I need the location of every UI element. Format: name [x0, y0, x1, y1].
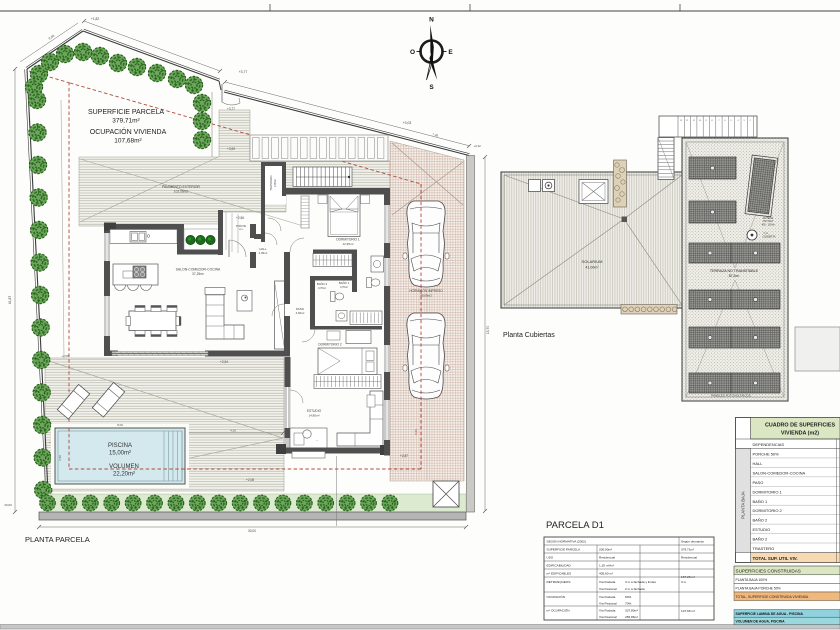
- svg-text:PORCHE 50%: PORCHE 50%: [753, 452, 780, 457]
- svg-text:41,87: 41,87: [8, 296, 12, 305]
- svg-text:ESTUDIO: ESTUDIO: [307, 409, 322, 413]
- svg-text:SUPERFICIE LAMINA DE AGUA - PI: SUPERFICIE LAMINA DE AGUA - PISCINA: [736, 612, 804, 616]
- svg-text:PAVIMENTO EXTERIOR: PAVIMENTO EXTERIOR: [162, 185, 200, 189]
- svg-text:379,71m²: 379,71m²: [112, 118, 140, 125]
- svg-text:O: O: [410, 49, 415, 56]
- svg-text:SUPERFICIE PARCELA: SUPERFICIE PARCELA: [88, 109, 164, 116]
- svg-text:BAÑO 1: BAÑO 1: [753, 499, 768, 504]
- svg-text:2 m a fachada: 2 m a fachada: [625, 587, 645, 591]
- svg-text:2,95m²: 2,95m²: [273, 179, 277, 187]
- svg-text:TOTAL, SUPERFICIE CONSTRUIDA V: TOTAL, SUPERFICIE CONSTRUIDA VIVIENDA: [736, 595, 810, 599]
- svg-text:167,28 m²: 167,28 m²: [681, 575, 695, 579]
- svg-text:PISCINA: PISCINA: [108, 443, 132, 449]
- svg-text:TRASTERO: TRASTERO: [269, 175, 273, 191]
- svg-text:Vía Rodada: Vía Rodada: [599, 580, 616, 584]
- svg-text:SALON-COMEDOR-COCINA: SALON-COMEDOR-COCINA: [753, 470, 806, 475]
- svg-text:7,40: 7,40: [432, 132, 439, 137]
- svg-text:Planta Cubiertas: Planta Cubiertas: [503, 332, 555, 339]
- svg-text:379,71m²: 379,71m²: [681, 547, 694, 551]
- svg-text:2,09m²: 2,09m²: [259, 251, 268, 255]
- svg-text:3 m a fachada y lindes: 3 m a fachada y lindes: [625, 580, 656, 584]
- svg-text:102,06m2: 102,06m2: [174, 190, 188, 194]
- svg-text:VOLUMEN DE AGUA, PISCINA: VOLUMEN DE AGUA, PISCINA: [736, 620, 786, 624]
- svg-text:VIVIENDA (m2): VIVIENDA (m2): [781, 431, 819, 437]
- svg-text:TRASTERO: TRASTERO: [753, 546, 775, 551]
- svg-text:S: S: [429, 84, 434, 91]
- svg-text:±0,00: ±0,00: [4, 503, 12, 507]
- svg-text:DORMITORIO 1: DORMITORIO 1: [336, 238, 360, 242]
- svg-text:1,20 m²/m²: 1,20 m²/m²: [599, 563, 614, 567]
- svg-text:4,69m²: 4,69m²: [296, 311, 305, 315]
- svg-text:SUPERFICIES CONSTRUIDAS: SUPERFICIES CONSTRUIDAS: [736, 569, 801, 574]
- svg-text:+2,87: +2,87: [400, 454, 408, 458]
- svg-text:Vía Peatonal: Vía Peatonal: [599, 601, 617, 605]
- svg-text:70%: 70%: [625, 601, 631, 605]
- svg-text:Vía Peatonal: Vía Peatonal: [599, 615, 617, 619]
- svg-text:CUADRO DE SUPERFICIES: CUADRO DE SUPERFICIES: [765, 423, 835, 429]
- svg-text:15,70: 15,70: [486, 326, 490, 335]
- svg-text:107,68m²: 107,68m²: [114, 138, 142, 145]
- svg-text:OCUPACIÓN: OCUPACIÓN: [547, 594, 566, 599]
- svg-text:C.A.: C.A.: [763, 231, 768, 235]
- svg-text:OCUPACIÓN VIVIENDA: OCUPACIÓN VIVIENDA: [90, 127, 167, 136]
- svg-text:PLANTA BAJA 100%: PLANTA BAJA 100%: [736, 578, 768, 582]
- svg-text:PLANTA BAJA: PLANTA BAJA: [741, 491, 746, 519]
- svg-text:405,60 m²: 405,60 m²: [599, 571, 613, 575]
- svg-text:Según demanda: Según demanda: [681, 539, 704, 543]
- svg-text:PLANTA PARCELA: PLANTA PARCELA: [25, 535, 90, 544]
- svg-text:RETRANQUEOS: RETRANQUEOS: [547, 580, 571, 584]
- svg-text:+3,99: +3,99: [227, 147, 235, 151]
- svg-text:Residencial: Residencial: [599, 555, 615, 559]
- svg-text:87,2m²: 87,2m²: [729, 274, 740, 278]
- svg-text:15,00m²: 15,00m²: [109, 451, 131, 457]
- svg-text:PORCHE: PORCHE: [236, 225, 247, 228]
- svg-text:+3,12: +3,12: [473, 144, 481, 148]
- svg-text:337,80m²: 337,80m²: [625, 609, 638, 613]
- svg-text:HALL: HALL: [753, 461, 764, 466]
- svg-text:DORMITORIO 1: DORMITORIO 1: [753, 489, 783, 494]
- svg-text:SOLARIUM: SOLARIUM: [582, 259, 603, 264]
- svg-text:265,86m²: 265,86m²: [625, 615, 638, 619]
- svg-text:30,00: 30,00: [248, 529, 256, 533]
- svg-text:m² EDIFICABLES: m² EDIFICABLES: [547, 571, 572, 575]
- svg-text:PASO: PASO: [753, 480, 764, 485]
- svg-text:60%: 60%: [625, 595, 631, 599]
- svg-text:107,68 m²: 107,68 m²: [681, 609, 695, 613]
- svg-text:+2,94: +2,94: [220, 360, 228, 364]
- svg-text:41,00m²: 41,00m²: [585, 266, 599, 270]
- svg-text:Vía Rodada: Vía Rodada: [599, 595, 616, 599]
- svg-text:TERRAZA NO TRANSITABLE: TERRAZA NO TRANSITABLE: [710, 269, 759, 273]
- svg-text:Residencial: Residencial: [681, 555, 697, 559]
- svg-text:22,20m²: 22,20m²: [113, 472, 135, 478]
- svg-text:BAÑO 1: BAÑO 1: [339, 280, 350, 285]
- svg-text:3,70m²: 3,70m²: [340, 285, 348, 289]
- svg-text:2,50: 2,50: [58, 455, 62, 461]
- svg-text:+1,82: +1,82: [91, 17, 99, 21]
- svg-text:+3,03: +3,03: [403, 121, 412, 125]
- svg-text:+2,58: +2,58: [61, 354, 69, 358]
- svg-text:m² OCUPACIÓN: m² OCUPACIÓN: [547, 608, 570, 613]
- svg-text:14,80m²: 14,80m²: [308, 414, 319, 418]
- svg-text:9,46: 9,46: [48, 34, 56, 41]
- svg-text:PANELES FOTOVOLTAICOS: PANELES FOTOVOLTAICOS: [711, 394, 750, 398]
- svg-text:3 m: 3 m: [681, 580, 687, 584]
- svg-text:37,25m²: 37,25m²: [192, 272, 204, 276]
- svg-text:SALON-COMEDOR-COCINA: SALON-COMEDOR-COCINA: [176, 268, 221, 272]
- svg-text:N: N: [429, 17, 434, 24]
- svg-text:+2,08: +2,08: [246, 478, 254, 482]
- svg-text:DORMITORIO 2: DORMITORIO 2: [753, 508, 783, 513]
- svg-text:EDIFICABILIDAD: EDIFICABILIDAD: [547, 563, 572, 567]
- svg-text:12,95m²: 12,95m²: [342, 242, 353, 246]
- svg-text:E: E: [448, 49, 453, 56]
- svg-text:48,09m2: 48,09m2: [420, 294, 432, 298]
- svg-text:TOTAL SUP. UTIL VIV.: TOTAL SUP. UTIL VIV.: [753, 556, 798, 561]
- svg-text:SUPERFICIE PARCELA: SUPERFICIE PARCELA: [547, 547, 582, 551]
- svg-text:8,00: 8,00: [414, 429, 418, 435]
- svg-text:ESTUDIO: ESTUDIO: [753, 527, 771, 532]
- svg-text:40E - 150Hz: 40E - 150Hz: [761, 223, 775, 226]
- svg-text:PLANTA BAJA PORCHE 50%: PLANTA BAJA PORCHE 50%: [736, 587, 781, 591]
- svg-text:SEGÚN NORMATIVA (2002): SEGÚN NORMATIVA (2002): [547, 539, 586, 543]
- svg-text:8,00: 8,00: [117, 423, 123, 427]
- svg-text:+2,56: +2,56: [236, 216, 244, 220]
- svg-text:HORMIGÓN IMPRESO: HORMIGÓN IMPRESO: [409, 288, 443, 293]
- svg-text:DORMITORIO 2: DORMITORIO 2: [318, 343, 342, 347]
- svg-text:+3,77: +3,77: [227, 107, 235, 111]
- svg-text:200,00m²: 200,00m²: [599, 547, 612, 551]
- svg-text:BAÑO 2: BAÑO 2: [753, 518, 768, 523]
- svg-text:PARCELA D1: PARCELA D1: [546, 520, 604, 531]
- svg-text:4,36: 4,36: [230, 429, 236, 433]
- svg-text:BAÑO 2: BAÑO 2: [753, 537, 768, 542]
- svg-text:DEPENDENCIAS: DEPENDENCIAS: [753, 442, 785, 447]
- svg-text:+3,77: +3,77: [239, 70, 248, 74]
- svg-text:3,70m²: 3,70m²: [318, 286, 326, 290]
- svg-text:Vía Peatonal: Vía Peatonal: [599, 587, 617, 591]
- svg-text:Vía Rodada: Vía Rodada: [599, 609, 616, 613]
- svg-text:50%: 50%: [239, 229, 243, 231]
- svg-text:↔: ↔: [316, 438, 319, 442]
- svg-text:CUBIERTA: CUBIERTA: [763, 234, 776, 238]
- svg-text:USO: USO: [547, 555, 554, 559]
- svg-text:BAÑO 2: BAÑO 2: [317, 281, 328, 286]
